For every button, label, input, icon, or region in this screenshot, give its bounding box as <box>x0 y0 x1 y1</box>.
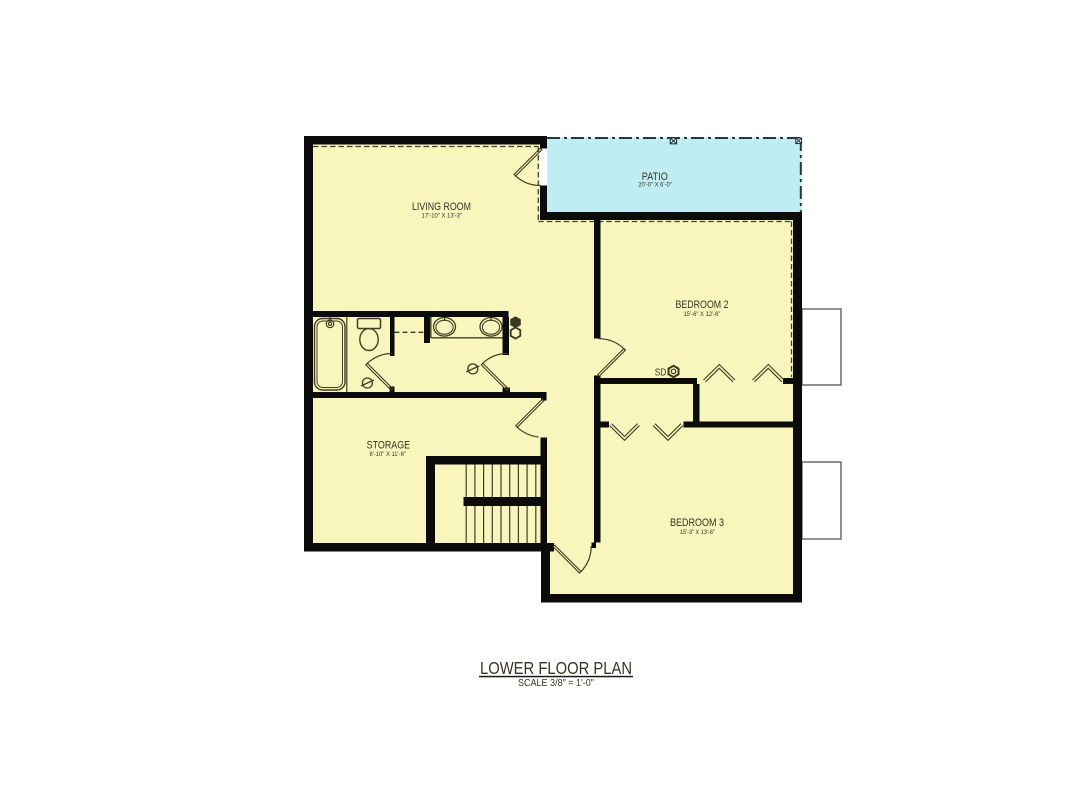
svg-text:17'-10" X 13'-3": 17'-10" X 13'-3" <box>422 213 463 220</box>
svg-text:15'-6" X 12'-6": 15'-6" X 12'-6" <box>684 311 721 318</box>
svg-text:STORAGE: STORAGE <box>367 439 411 451</box>
svg-text:BEDROOM 3: BEDROOM 3 <box>670 517 724 529</box>
svg-text:20'-0" X 6'-0": 20'-0" X 6'-0" <box>638 182 672 189</box>
svg-text:15'-3" X 13'-6": 15'-3" X 13'-6" <box>680 529 715 536</box>
svg-text:SD: SD <box>655 367 667 378</box>
svg-text:LIVING ROOM: LIVING ROOM <box>412 201 471 213</box>
svg-text:SCALE 3/8" = 1'-0": SCALE 3/8" = 1'-0" <box>518 677 594 689</box>
svg-text:LOWER FLOOR PLAN: LOWER FLOOR PLAN <box>480 658 632 678</box>
svg-text:8'-10" X 11'-6": 8'-10" X 11'-6" <box>369 451 406 458</box>
svg-text:BEDROOM 2: BEDROOM 2 <box>676 299 729 311</box>
